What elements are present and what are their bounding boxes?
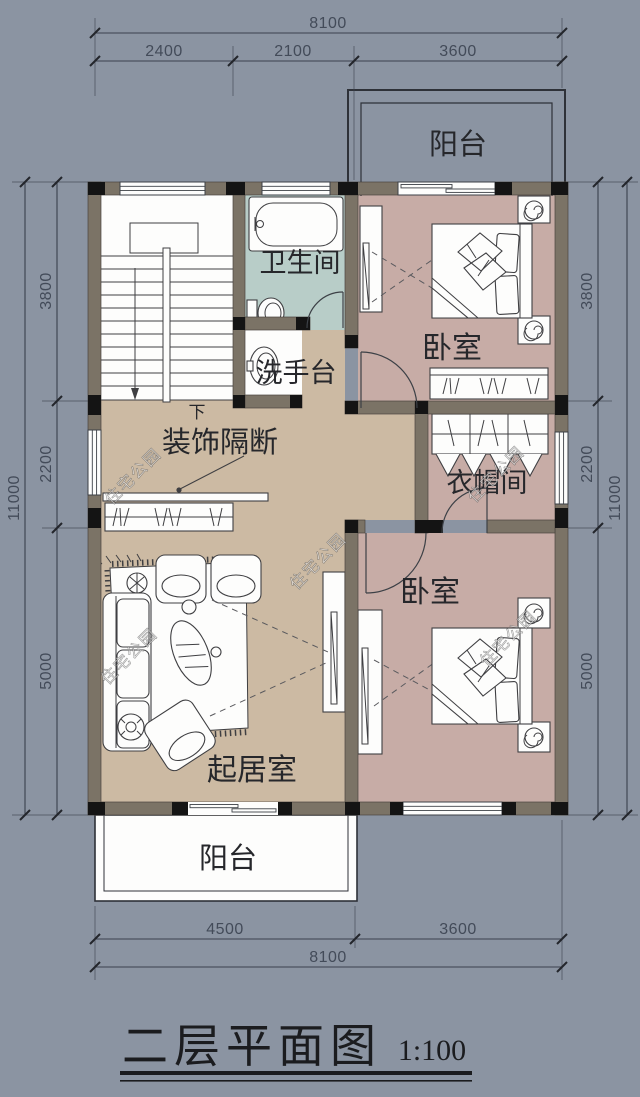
- label-bedroom-bottom: 卧室: [400, 576, 460, 609]
- dim-bottom-seg2: 3600: [439, 921, 477, 938]
- dim-left-seg3: 5000: [38, 652, 55, 690]
- sliding-door: [398, 182, 497, 195]
- floorplan-canvas: 阳台 卫生间 卧室 洗手台 装饰隔断 衣帽间 卧室 起居室 阳台 下 8100 …: [0, 0, 640, 1097]
- floorplan-drawing: 阳台 卫生间 卧室 洗手台 装饰隔断 衣帽间 卧室 起居室 阳台 下 8100 …: [0, 0, 640, 1097]
- window: [88, 430, 101, 495]
- floor-lamp-icon: [127, 573, 147, 593]
- dim-left-seg1: 3800: [38, 272, 55, 310]
- title-underline-thin: [120, 1080, 472, 1082]
- dim-bottom-seg1: 4500: [206, 921, 244, 938]
- wardrobe-icon: [430, 368, 548, 399]
- sliding-door: [188, 802, 278, 815]
- label-balcony-top: 阳台: [429, 128, 487, 161]
- window: [262, 182, 330, 195]
- dim-left-seg2: 2200: [38, 445, 55, 483]
- window: [403, 802, 502, 815]
- dim-right-total: 11000: [607, 475, 624, 521]
- dim-right-seg3: 5000: [579, 652, 596, 690]
- title-scale: 1:100: [398, 1034, 466, 1067]
- floor-lamp-icon: [118, 714, 144, 740]
- armchair-icon: [156, 555, 206, 603]
- dim-top-seg3: 3600: [439, 43, 477, 60]
- label-washstand: 洗手台: [256, 358, 337, 388]
- dim-left-total: 11000: [6, 475, 23, 521]
- page-title: 二层平面图: [122, 1021, 382, 1072]
- label-living: 起居室: [207, 754, 297, 787]
- bed-icon: [432, 224, 532, 318]
- label-balcony-bottom: 阳台: [199, 842, 257, 875]
- dim-top-seg1: 2400: [145, 43, 183, 60]
- label-partition: 装饰隔断: [162, 426, 278, 459]
- window: [555, 432, 568, 504]
- bathtub-icon: [249, 197, 343, 251]
- label-bedroom-top: 卧室: [422, 332, 482, 365]
- label-stairs-down: 下: [189, 403, 206, 422]
- dim-top-seg2: 2100: [274, 43, 312, 60]
- dim-bottom-total: 8100: [309, 949, 347, 966]
- armchair-icon: [211, 555, 261, 603]
- window: [120, 182, 205, 195]
- tv-cabinet-living: [323, 572, 345, 712]
- dim-right-seg2: 2200: [579, 445, 596, 483]
- dim-top-total: 8100: [309, 15, 347, 32]
- title-block: 二层平面图 1:100: [120, 1021, 472, 1082]
- title-underline-thick: [120, 1071, 472, 1075]
- dim-right-seg1: 3800: [579, 272, 596, 310]
- label-bathroom: 卫生间: [260, 248, 341, 278]
